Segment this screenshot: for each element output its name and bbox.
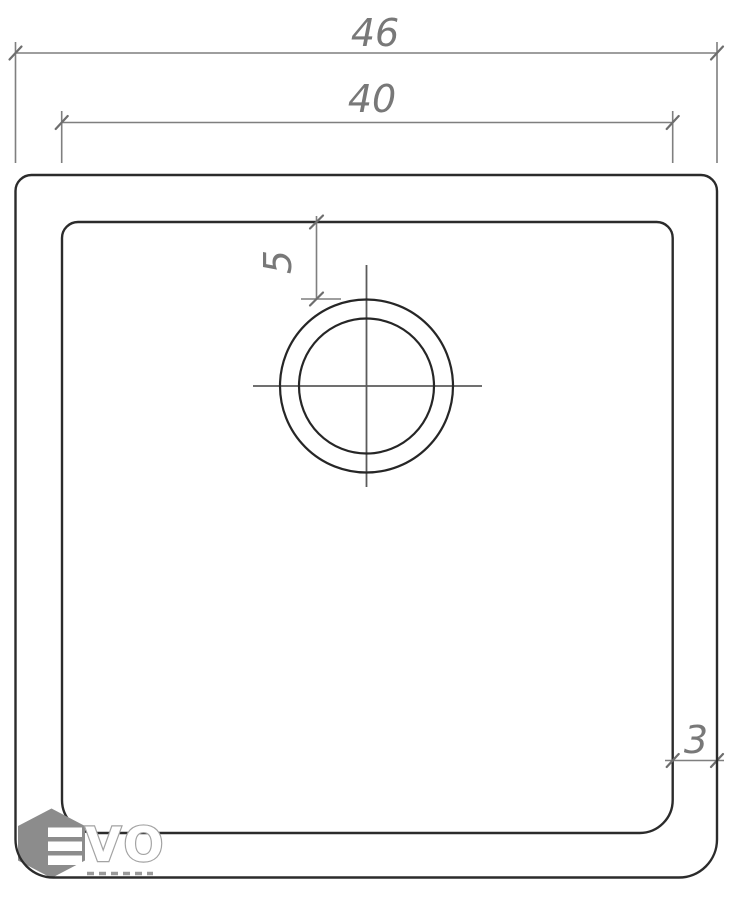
sink-technical-drawing: 46 40 5 3: [0, 0, 738, 900]
e-bar: [48, 828, 82, 838]
drawing-canvas: 46 40 5 3: [0, 0, 738, 900]
dim-label-drain-offset: 5: [256, 250, 300, 274]
e-bar: [48, 856, 82, 866]
dimension-inner-width: 40: [56, 77, 679, 163]
drain-hole: [253, 265, 482, 487]
logo-text: VO: [85, 818, 167, 873]
dimension-drain-offset: 5: [256, 216, 341, 306]
dim-label-overall-width: 46: [351, 11, 399, 55]
logo-letter-e-bars: [48, 828, 82, 866]
evo-logo: VO: [18, 809, 167, 879]
e-bar: [48, 842, 82, 852]
dim-label-inner-width: 40: [348, 77, 396, 121]
dim-label-rim-thickness: 3: [684, 718, 708, 762]
